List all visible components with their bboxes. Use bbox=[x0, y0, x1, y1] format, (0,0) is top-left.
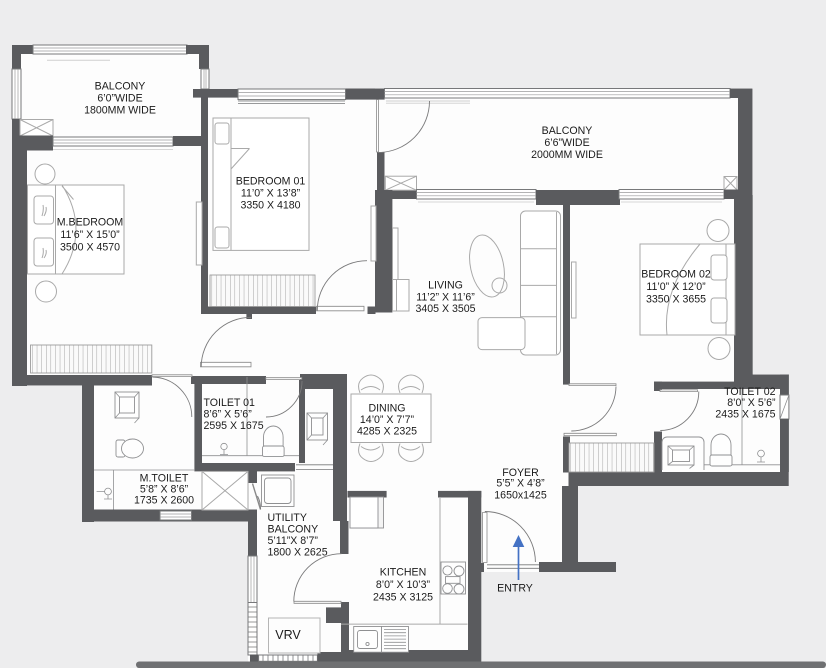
svg-text:BALCONY: BALCONY bbox=[95, 81, 146, 93]
svg-text:11’0” X 13’8”: 11’0” X 13’8” bbox=[241, 188, 301, 200]
svg-text:8’0” X 5’6”: 8’0” X 5’6” bbox=[727, 397, 776, 409]
svg-text:TOILET 01: TOILET 01 bbox=[204, 397, 256, 409]
svg-text:BALCONY: BALCONY bbox=[542, 125, 593, 137]
svg-text:14’0” X 7’7”: 14’0” X 7’7” bbox=[360, 414, 415, 426]
svg-text:BEDROOM 02: BEDROOM 02 bbox=[641, 269, 711, 281]
svg-text:BALCONY: BALCONY bbox=[268, 524, 319, 536]
svg-text:VRV: VRV bbox=[275, 628, 301, 642]
svg-text:1650x1425: 1650x1425 bbox=[494, 490, 547, 502]
svg-text:8’6” X 5’6”: 8’6” X 5’6” bbox=[204, 409, 253, 421]
svg-text:3350 X 4180: 3350 X 4180 bbox=[240, 200, 300, 212]
svg-text:5’11”X 8’7”: 5’11”X 8’7” bbox=[268, 535, 319, 547]
svg-text:UTILITY: UTILITY bbox=[268, 512, 307, 524]
svg-text:BEDROOM 01: BEDROOM 01 bbox=[236, 176, 306, 188]
svg-text:2000MM WIDE: 2000MM WIDE bbox=[531, 149, 603, 161]
svg-text:ENTRY: ENTRY bbox=[497, 583, 533, 595]
svg-text:4285 X 2325: 4285 X 2325 bbox=[357, 425, 417, 437]
svg-text:2435 X 1675: 2435 X 1675 bbox=[715, 409, 775, 421]
svg-text:KITCHEN: KITCHEN bbox=[380, 567, 427, 579]
svg-text:3350 X 3655: 3350 X 3655 bbox=[646, 294, 706, 306]
svg-text:6’0”WIDE: 6’0”WIDE bbox=[97, 93, 142, 105]
svg-text:8’0” X 10’3”: 8’0” X 10’3” bbox=[376, 579, 431, 591]
svg-text:11’2” X 11’6”: 11’2” X 11’6” bbox=[416, 291, 475, 303]
svg-text:1735 X 2600: 1735 X 2600 bbox=[134, 495, 194, 507]
svg-text:11’6” X 15’0”: 11’6” X 15’0” bbox=[60, 229, 120, 241]
svg-text:2435 X 3125: 2435 X 3125 bbox=[373, 592, 433, 604]
svg-text:LIVING: LIVING bbox=[428, 280, 463, 292]
svg-text:5’5” X 4’8”: 5’5” X 4’8” bbox=[496, 478, 545, 490]
svg-text:3500 X 4570: 3500 X 4570 bbox=[60, 242, 120, 254]
svg-text:1800 X 2625: 1800 X 2625 bbox=[268, 547, 328, 559]
svg-text:6’6”WIDE: 6’6”WIDE bbox=[544, 137, 589, 149]
svg-text:3405 X 3505: 3405 X 3505 bbox=[415, 303, 475, 315]
svg-text:11’0” X 12’0”: 11’0” X 12’0” bbox=[646, 281, 706, 293]
svg-text:TOILET 02: TOILET 02 bbox=[724, 386, 776, 398]
svg-text:2595 X 1675: 2595 X 1675 bbox=[204, 420, 264, 432]
svg-text:M.BEDROOM: M.BEDROOM bbox=[57, 217, 124, 229]
svg-text:1800MM WIDE: 1800MM WIDE bbox=[84, 105, 156, 117]
svg-text:DINING: DINING bbox=[368, 403, 405, 415]
